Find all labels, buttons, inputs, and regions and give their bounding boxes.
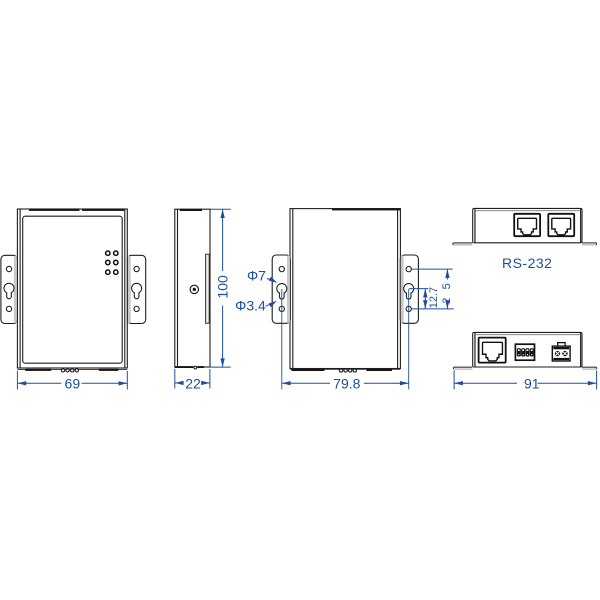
svg-text:91: 91 xyxy=(524,376,540,392)
svg-text:RS-232: RS-232 xyxy=(502,255,552,271)
svg-text:22: 22 xyxy=(185,376,201,392)
svg-text:79.8: 79.8 xyxy=(333,376,360,392)
svg-text:Φ3.4: Φ3.4 xyxy=(235,298,266,314)
svg-text:2: 2 xyxy=(441,298,453,304)
svg-text:100: 100 xyxy=(214,275,230,299)
svg-text:69: 69 xyxy=(65,376,81,392)
svg-text:5: 5 xyxy=(441,283,453,289)
svg-text:Φ7: Φ7 xyxy=(247,268,266,284)
svg-text:12.7: 12.7 xyxy=(428,287,440,308)
